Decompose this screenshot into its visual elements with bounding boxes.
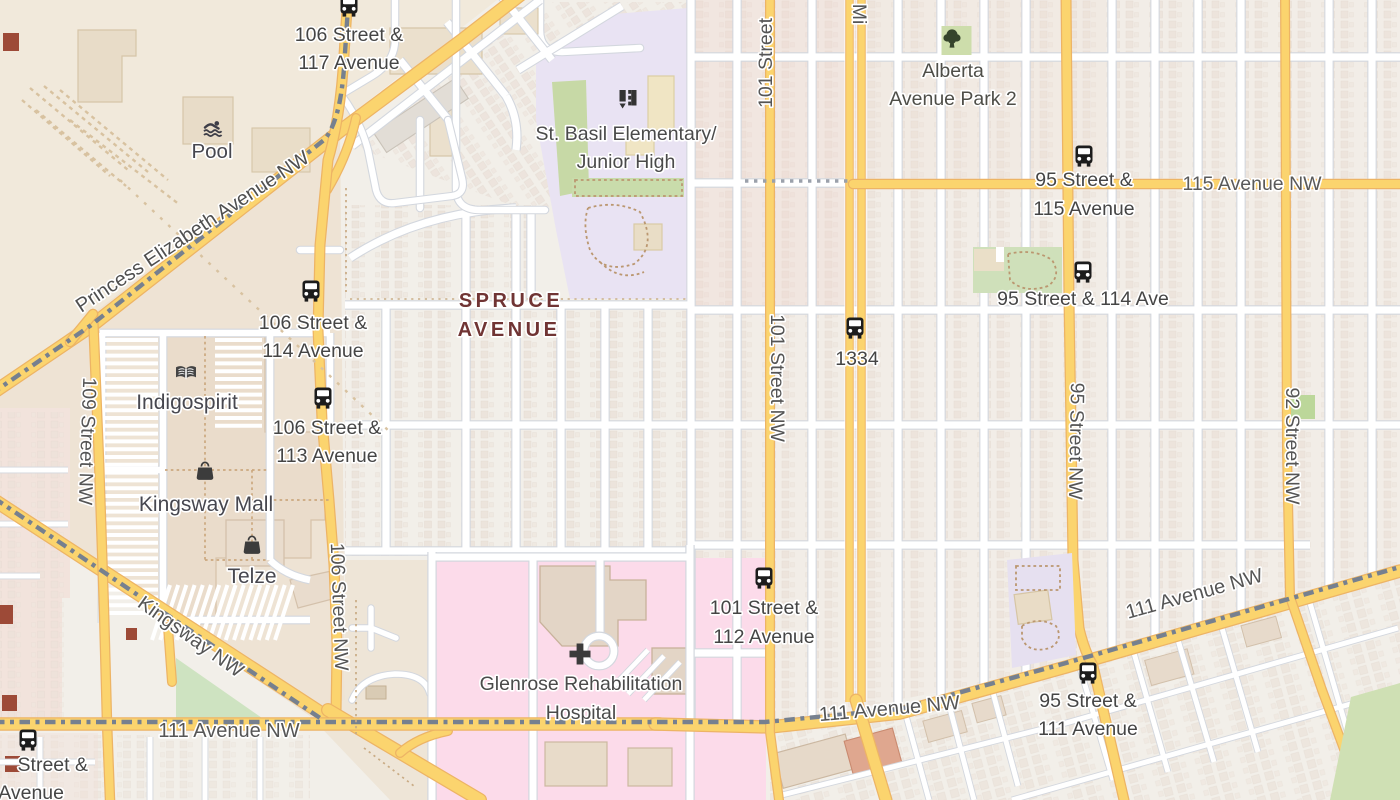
svg-text:Junior High: Junior High bbox=[577, 151, 676, 173]
svg-text:Hospital: Hospital bbox=[546, 702, 616, 724]
svg-text:106 Street &: 106 Street & bbox=[273, 417, 381, 439]
svg-text:1334: 1334 bbox=[835, 348, 879, 370]
svg-text:115 Avenue NW: 115 Avenue NW bbox=[1182, 173, 1322, 195]
svg-text:112 Avenue: 112 Avenue bbox=[713, 626, 814, 648]
svg-text:95 Street NW: 95 Street NW bbox=[1064, 382, 1088, 500]
svg-text:106 Street NW: 106 Street NW bbox=[326, 543, 352, 672]
svg-text:113 Avenue: 113 Avenue bbox=[276, 445, 377, 467]
svg-text:111 Avenue NW: 111 Avenue NW bbox=[158, 720, 299, 742]
svg-text:Indigospirit: Indigospirit bbox=[136, 391, 238, 414]
svg-text:95 Street &: 95 Street & bbox=[1035, 169, 1133, 191]
svg-text:Avenue Park 2: Avenue Park 2 bbox=[889, 88, 1017, 110]
svg-text:Kingsway Mall: Kingsway Mall bbox=[139, 493, 273, 516]
svg-text:95 Street & 114 Ave: 95 Street & 114 Ave bbox=[997, 288, 1169, 310]
svg-text:109 Street NW: 109 Street NW bbox=[74, 377, 100, 506]
svg-text:Pool: Pool bbox=[191, 140, 232, 163]
svg-text:AVENUE: AVENUE bbox=[458, 319, 561, 341]
svg-text:114 Avenue: 114 Avenue bbox=[262, 340, 363, 362]
svg-text:Street &: Street & bbox=[18, 754, 88, 776]
svg-text:95 Street &: 95 Street & bbox=[1039, 690, 1137, 712]
svg-text:SPRUCE: SPRUCE bbox=[459, 290, 563, 312]
svg-text:Alberta: Alberta bbox=[922, 60, 984, 82]
svg-text:101 Street: 101 Street bbox=[755, 17, 777, 108]
svg-text:101 Street NW: 101 Street NW bbox=[766, 314, 788, 442]
svg-text:92 Street NW: 92 Street NW bbox=[1281, 387, 1303, 505]
svg-text:115 Avenue: 115 Avenue bbox=[1033, 198, 1134, 220]
svg-text:106 Street &: 106 Street & bbox=[295, 24, 403, 46]
svg-text:117 Avenue: 117 Avenue bbox=[298, 52, 399, 74]
svg-text:111 Avenue: 111 Avenue bbox=[1038, 718, 1138, 740]
svg-text:Glenrose Rehabilitation: Glenrose Rehabilitation bbox=[480, 673, 683, 695]
svg-text:St. Basil Elementary/: St. Basil Elementary/ bbox=[536, 123, 718, 145]
svg-text:Telze: Telze bbox=[227, 565, 276, 588]
svg-text:Mi: Mi bbox=[848, 4, 870, 25]
svg-text:101 Street &: 101 Street & bbox=[710, 597, 818, 619]
svg-text:Avenue: Avenue bbox=[0, 782, 64, 800]
svg-text:106 Street &: 106 Street & bbox=[259, 312, 367, 334]
